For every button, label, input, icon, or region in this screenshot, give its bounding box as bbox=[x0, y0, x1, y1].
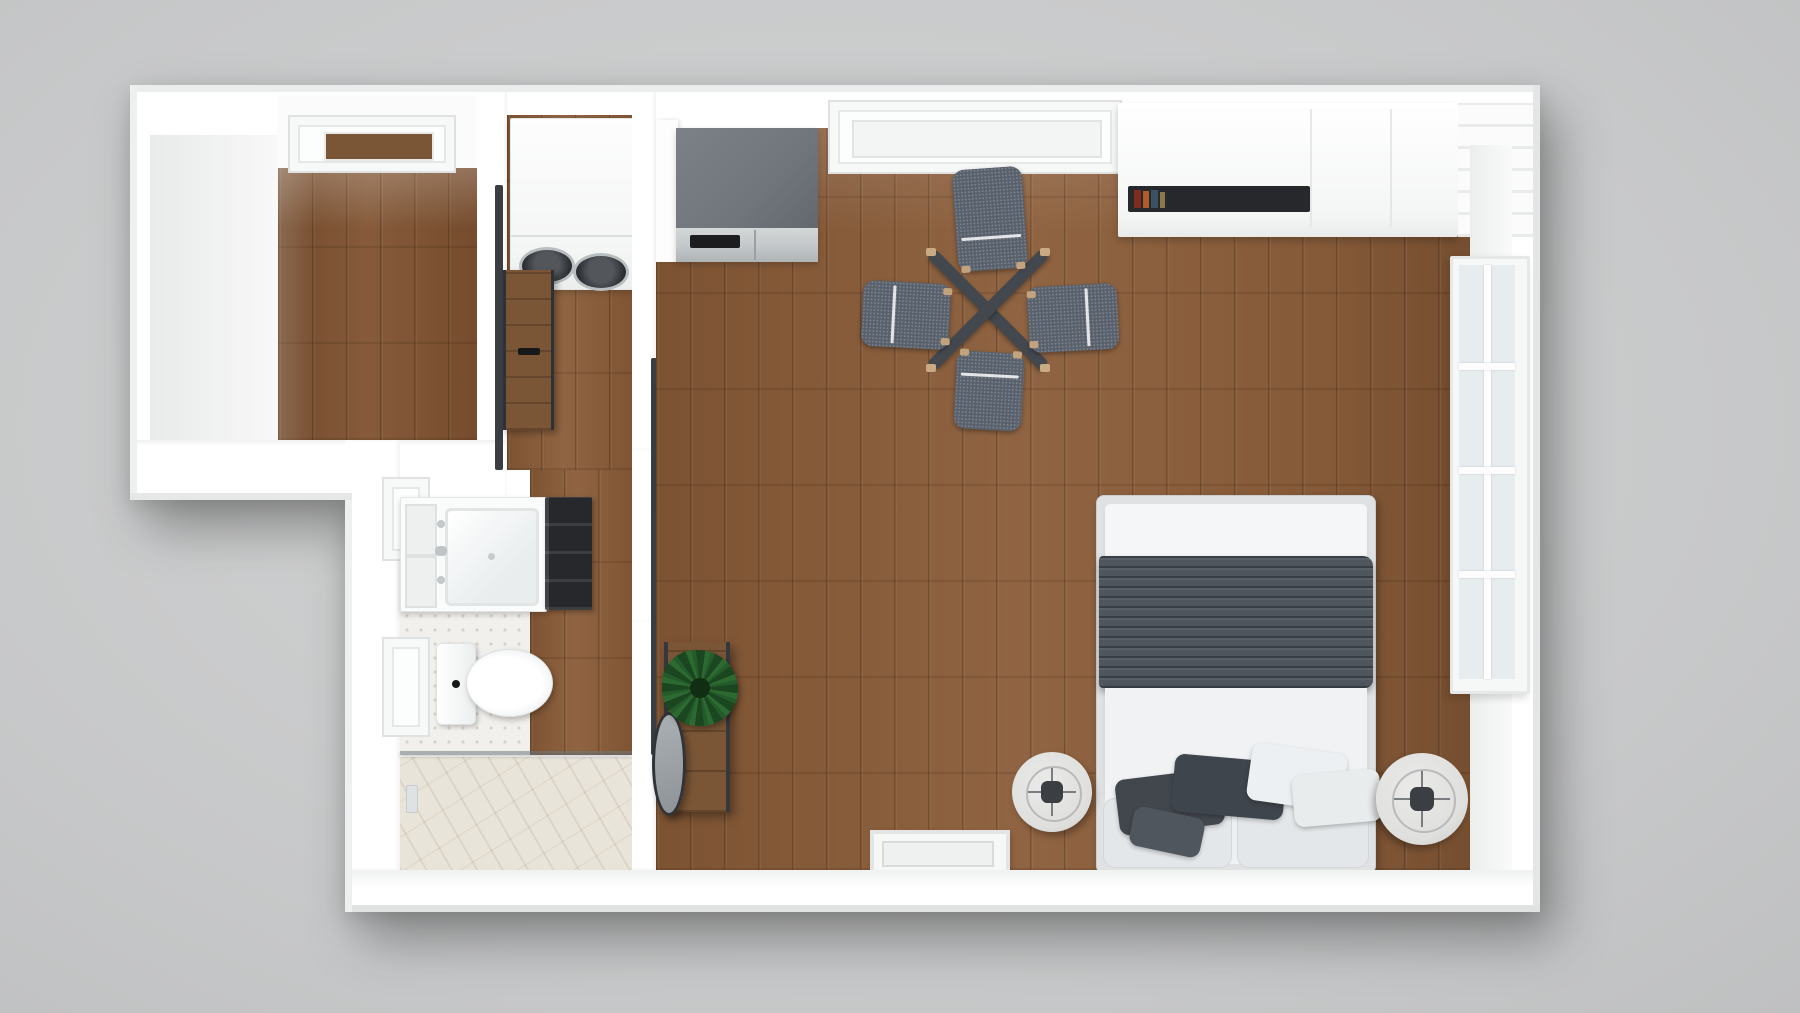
faucet-handle-icon-1 bbox=[437, 520, 445, 528]
floorplan-scene bbox=[0, 0, 1800, 1013]
shower-glass-partition bbox=[400, 751, 632, 755]
dining-chair-west bbox=[860, 280, 951, 351]
den-floor-light bbox=[278, 168, 477, 440]
book-niche bbox=[1128, 186, 1310, 212]
faucet-spout-icon bbox=[435, 546, 447, 556]
window-mullion-h1 bbox=[1459, 363, 1515, 370]
plan-edge-right bbox=[1533, 85, 1540, 912]
dining-chair-north bbox=[952, 166, 1029, 273]
vanity-sink-basin bbox=[445, 508, 539, 606]
kitchen-counter-top bbox=[676, 128, 818, 228]
plan-edge-notch-top bbox=[130, 493, 352, 500]
oven-divider-line bbox=[754, 230, 756, 260]
vanity-cabinet-door-2 bbox=[405, 556, 437, 608]
main-top-window-sill bbox=[852, 120, 1102, 158]
bathroom-window-lower bbox=[382, 637, 430, 737]
dryer-door-icon bbox=[573, 253, 629, 291]
toilet bbox=[436, 643, 551, 723]
apartment-walls bbox=[130, 85, 1540, 912]
shower-fixture-icon bbox=[406, 785, 418, 813]
nightstand-right-lamp bbox=[1410, 787, 1434, 811]
nightstand-right bbox=[1376, 753, 1468, 845]
leaning-mirror bbox=[652, 712, 686, 816]
wardrobe-divider-1 bbox=[1310, 109, 1312, 227]
washer-dryer-seam bbox=[511, 235, 633, 237]
bottom-wall-vent-inner bbox=[882, 841, 994, 867]
dining-chair-east bbox=[1026, 283, 1119, 354]
window-mullion-h3 bbox=[1459, 571, 1515, 578]
right-wall-window bbox=[1450, 256, 1530, 694]
shower-floor bbox=[400, 757, 632, 870]
den-bottom-wall bbox=[130, 440, 507, 497]
oven-front bbox=[676, 228, 818, 262]
table-foot-1 bbox=[926, 248, 936, 256]
table-foot-3 bbox=[926, 364, 936, 372]
sink-drain-icon bbox=[488, 553, 495, 560]
plan-edge-left bbox=[130, 85, 137, 500]
main-top-window bbox=[828, 100, 1122, 174]
book-icon-3 bbox=[1151, 190, 1158, 208]
oven-handle-icon bbox=[690, 235, 740, 248]
toilet-flush-button-icon bbox=[452, 680, 460, 688]
potted-plant bbox=[662, 650, 738, 726]
kitchen-side-panel bbox=[656, 120, 678, 262]
den-window-opening bbox=[324, 132, 434, 161]
nightstand-left-lamp bbox=[1041, 781, 1063, 803]
washer-dryer bbox=[510, 118, 634, 290]
table-foot-4 bbox=[1040, 364, 1050, 372]
vanity-cabinet-door-1 bbox=[405, 504, 437, 556]
kitchen-unit bbox=[676, 128, 818, 262]
dining-chair-south bbox=[953, 350, 1025, 431]
plan-edge-notch-left bbox=[345, 500, 352, 912]
plant-center bbox=[690, 678, 710, 698]
apartment-floorplan bbox=[130, 85, 1540, 912]
book-icon-2 bbox=[1143, 191, 1149, 208]
bed bbox=[1096, 495, 1376, 874]
den-window bbox=[288, 115, 456, 173]
book-icon-1 bbox=[1134, 190, 1141, 208]
bathroom-window-lower-frame bbox=[392, 647, 420, 727]
pillow-white-2 bbox=[1291, 768, 1383, 827]
bathroom-shelf-niche bbox=[545, 497, 592, 610]
toilet-bowl bbox=[466, 649, 553, 717]
closet-door-rail bbox=[495, 185, 503, 470]
closet-barn-door bbox=[503, 270, 554, 430]
window-mullion-h2 bbox=[1459, 467, 1515, 474]
table-foot-2 bbox=[1040, 248, 1050, 256]
wardrobe-unit bbox=[1118, 103, 1458, 237]
closet-door-handle bbox=[518, 348, 540, 355]
book-icon-4 bbox=[1160, 192, 1165, 208]
plan-edge-bottom bbox=[345, 905, 1540, 912]
nightstand-left bbox=[1012, 752, 1092, 832]
bed-throw-blanket bbox=[1099, 556, 1373, 688]
wardrobe-divider-2 bbox=[1390, 109, 1392, 227]
bathroom-vanity bbox=[400, 497, 547, 612]
den-left-wall-face bbox=[150, 135, 278, 440]
faucet-handle-icon-2 bbox=[437, 576, 445, 584]
plan-edge-top bbox=[130, 85, 1540, 92]
